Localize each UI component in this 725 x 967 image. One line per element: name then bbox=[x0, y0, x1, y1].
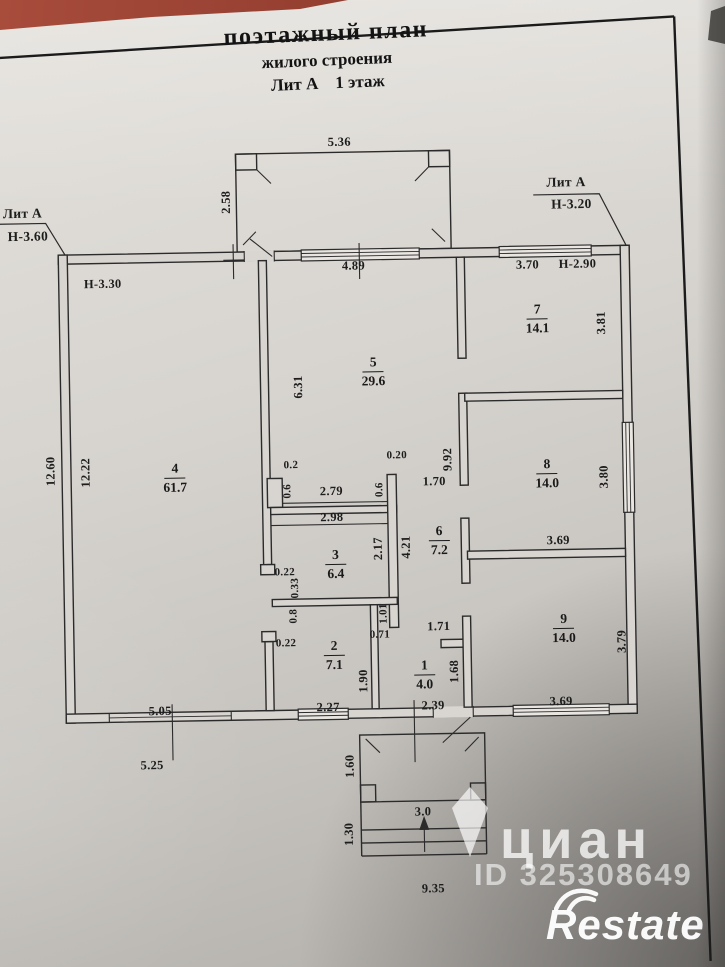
dimension-label: 0.20 bbox=[386, 449, 407, 461]
room-label: 814.0 bbox=[535, 456, 559, 491]
restate-watermark: Restate bbox=[546, 901, 705, 949]
dimension-label: 2.17 bbox=[371, 537, 386, 560]
dimension-label: 4.21 bbox=[399, 536, 414, 559]
height-callout-label: Н-3.20 bbox=[551, 196, 592, 213]
dimension-label: 0.8 bbox=[287, 609, 299, 624]
dimension-label: 1.68 bbox=[447, 660, 462, 683]
dimension-label: 5.05 bbox=[149, 704, 172, 719]
room-number: 3 bbox=[325, 547, 346, 565]
dimension-label: Н-3.30 bbox=[84, 277, 122, 293]
dimension-label: 3.79 bbox=[614, 630, 629, 653]
dimension-label: 12.22 bbox=[78, 458, 94, 488]
room-area: 14.0 bbox=[552, 629, 576, 646]
dimension-label: 2.98 bbox=[320, 510, 343, 525]
dimension-label: 6.31 bbox=[291, 375, 306, 398]
dimension-label: 0.6 bbox=[281, 484, 293, 499]
room-label: 36.4 bbox=[325, 547, 346, 582]
dimension-label: 4.89 bbox=[342, 258, 365, 273]
dimension-label: 3.81 bbox=[594, 311, 609, 334]
room-label: 27.1 bbox=[324, 638, 345, 673]
dimension-label: 3.70 bbox=[516, 257, 539, 272]
dimension-label: 1.01 bbox=[377, 603, 389, 624]
room-area: 29.6 bbox=[361, 372, 385, 389]
room-area: 7.1 bbox=[326, 656, 343, 673]
room-number: 4 bbox=[164, 461, 185, 479]
dimension-label: 3.69 bbox=[549, 694, 572, 709]
height-callout-label: Лит А bbox=[3, 206, 42, 223]
room-number: 5 bbox=[363, 354, 384, 372]
dimension-label: 0.71 bbox=[370, 629, 391, 641]
room-label: 914.0 bbox=[552, 611, 576, 646]
room-number: 8 bbox=[536, 456, 557, 474]
room-area: 7.2 bbox=[431, 541, 448, 558]
scanned-floor-plan-photo: поэтажный план жилого строения Лит А 1 э… bbox=[0, 0, 725, 967]
room-number: 6 bbox=[429, 523, 450, 541]
dimension-label: 5.25 bbox=[140, 758, 163, 773]
height-callout-label: Н-3.60 bbox=[8, 228, 49, 245]
dimension-label: 3.0 bbox=[415, 804, 432, 819]
room-number: 9 bbox=[553, 611, 574, 629]
dimension-label: 0.22 bbox=[274, 566, 295, 578]
dimension-label: 0.2 bbox=[283, 459, 298, 471]
dimension-label: 9.35 bbox=[422, 881, 445, 896]
room-label: 529.6 bbox=[361, 354, 385, 389]
dimension-label: 0.6 bbox=[373, 482, 385, 497]
dimension-label: 2.39 bbox=[421, 698, 444, 713]
room-area: 6.4 bbox=[327, 565, 344, 582]
room-label: 67.2 bbox=[429, 523, 450, 558]
dimension-label: 3.80 bbox=[596, 465, 611, 488]
dimension-label: 2.79 bbox=[320, 484, 343, 499]
dimension-label: 5.36 bbox=[328, 135, 351, 150]
height-callout-label: Лит А bbox=[546, 174, 585, 191]
dimension-label: 1.71 bbox=[427, 619, 450, 634]
room-area: 4.0 bbox=[416, 675, 433, 692]
room-area: 14.0 bbox=[535, 474, 559, 491]
dimension-label: 1.90 bbox=[356, 669, 371, 692]
dimension-label: 1.70 bbox=[423, 474, 446, 489]
room-number: 1 bbox=[414, 657, 435, 675]
room-label: 714.1 bbox=[525, 301, 549, 336]
dimension-label: 9.92 bbox=[440, 448, 455, 471]
title-block: поэтажный план жилого строения Лит А 1 э… bbox=[153, 13, 500, 100]
dimension-label: 3.69 bbox=[547, 533, 570, 548]
restate-waves-icon bbox=[554, 885, 600, 911]
room-label: 461.7 bbox=[163, 461, 187, 496]
dimension-label: 1.60 bbox=[342, 755, 357, 778]
dimension-label: Н-2.90 bbox=[559, 256, 597, 272]
dimension-label: 2.58 bbox=[219, 191, 234, 214]
room-number: 2 bbox=[324, 638, 345, 656]
dimension-label: 1.30 bbox=[342, 823, 357, 846]
room-area: 14.1 bbox=[526, 319, 550, 336]
veranda-outline bbox=[235, 150, 451, 252]
room-label: 14.0 bbox=[414, 657, 435, 692]
room-area: 61.7 bbox=[163, 479, 187, 496]
dimension-label: 12.60 bbox=[43, 456, 59, 486]
dimension-label: 0.22 bbox=[276, 637, 297, 649]
room-number: 7 bbox=[527, 301, 548, 319]
dimension-label: 0.33 bbox=[289, 578, 301, 599]
dimension-label: 2.27 bbox=[316, 700, 339, 715]
